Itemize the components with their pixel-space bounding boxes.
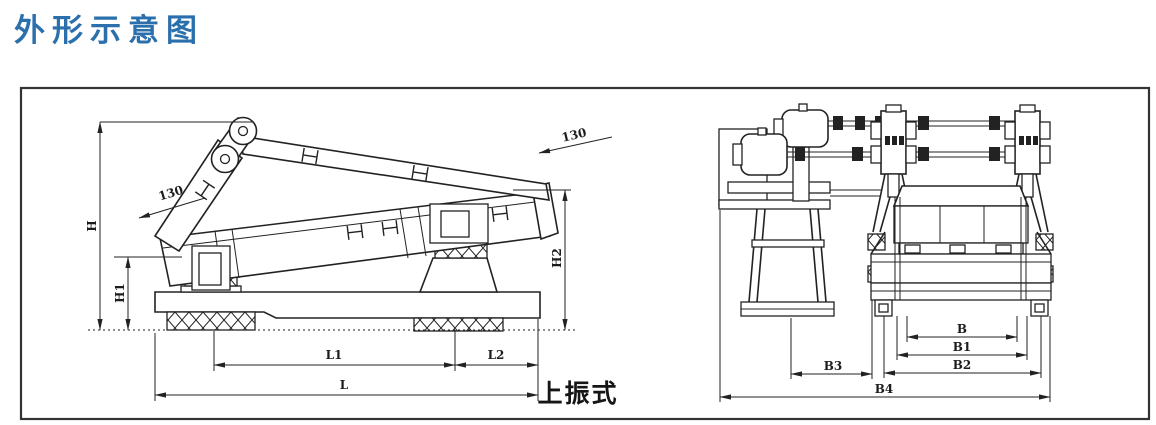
dim-label-b1: B1 — [953, 340, 972, 354]
dim-label-h1: H1 — [113, 283, 127, 303]
base-pad-left — [167, 312, 255, 330]
page-title: 外形示意图 — [14, 5, 204, 50]
base-pad-right — [414, 318, 503, 331]
dim-label-l: L — [340, 378, 349, 392]
outline-diagram: H H1 H2 L1 L2 L 130 130 上振式 — [0, 0, 1156, 425]
dim-label-b2: B2 — [953, 358, 972, 372]
dim-label-b4: B4 — [875, 382, 894, 396]
page: 外形示意图 — [0, 0, 1156, 425]
pedestal-right — [420, 258, 497, 292]
dim-label-l2: L2 — [488, 348, 505, 362]
dim-label-h2: H2 — [550, 248, 564, 268]
motor-upper — [782, 110, 828, 147]
type-label: 上振式 — [537, 380, 618, 408]
dim-label-b3: B3 — [824, 359, 843, 373]
dim-label-l1: L1 — [326, 348, 343, 362]
dim-label-b: B — [957, 322, 967, 336]
dim-label-h: H — [85, 220, 99, 231]
motor-lower — [741, 134, 787, 175]
